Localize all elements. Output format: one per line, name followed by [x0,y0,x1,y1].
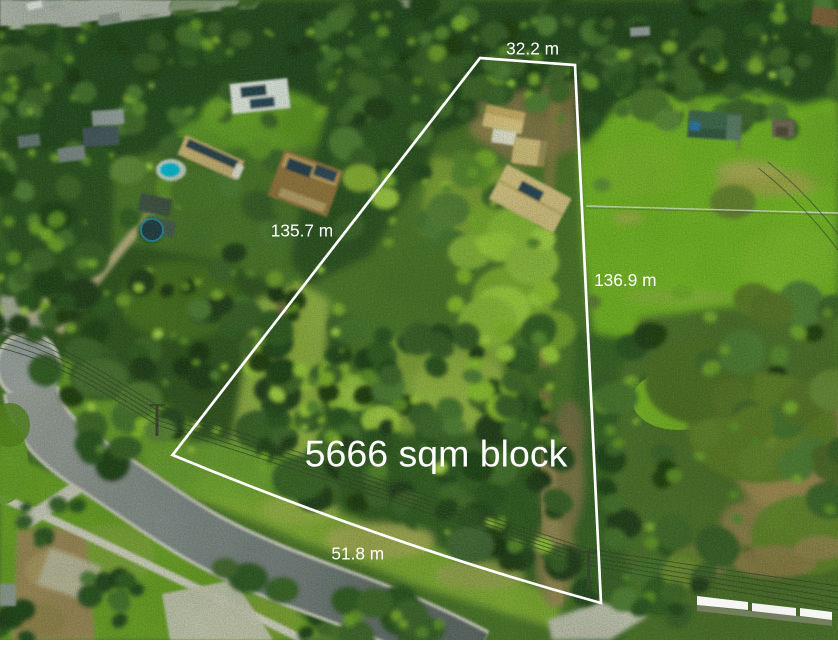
svg-text:136.9 m: 136.9 m [594,270,656,290]
svg-text:135.7 m: 135.7 m [271,221,333,241]
svg-text:51.8 m: 51.8 m [331,543,384,563]
svg-text:32.2 m: 32.2 m [506,38,559,58]
svg-text:5666 sqm block: 5666 sqm block [305,433,568,475]
